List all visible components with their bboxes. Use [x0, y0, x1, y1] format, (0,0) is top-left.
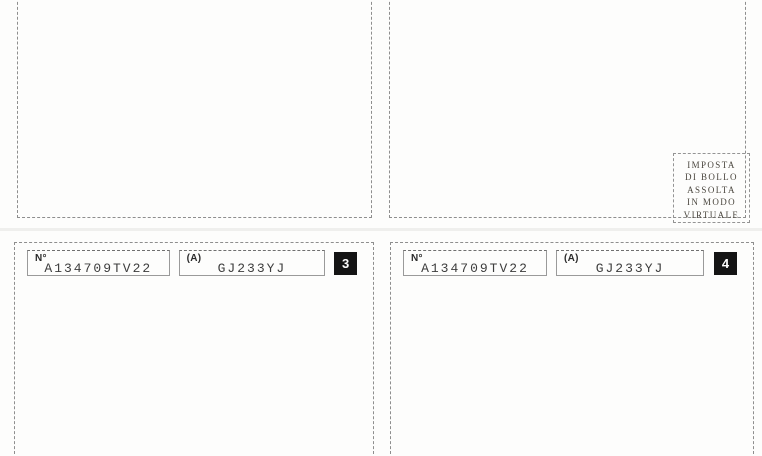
coupon-header: N° A134709TV22 (A) GJ233YJ 4	[391, 243, 753, 276]
virtual-stamp-duty-box: IMPOSTA DI BOLLO ASSOLTA IN MODO VIRTUAL…	[673, 153, 750, 223]
document-number-value: A134709TV22	[28, 261, 169, 276]
stamp-line: IN MODO	[674, 196, 749, 208]
stamp-line: VIRTUALE	[674, 209, 749, 221]
form-cell-top-left	[17, 0, 372, 218]
document-number-field: N° A134709TV22	[27, 250, 170, 276]
document-number-field: N° A134709TV22	[403, 250, 547, 276]
copy-number-badge: 3	[334, 252, 357, 275]
document-number-value: A134709TV22	[404, 261, 546, 276]
scanned-form-page: IMPOSTA DI BOLLO ASSOLTA IN MODO VIRTUAL…	[0, 0, 762, 456]
coupon-header: N° A134709TV22 (A) GJ233YJ 3	[15, 243, 373, 276]
scan-artifact-band	[0, 228, 762, 231]
stamp-line: IMPOSTA	[674, 159, 749, 171]
plate-code-value: GJ233YJ	[180, 261, 325, 276]
stamp-line: ASSOLTA	[674, 184, 749, 196]
stamp-line: DI BOLLO	[674, 171, 749, 183]
copy-number-badge: 4	[714, 252, 737, 275]
form-cell-coupon-4: N° A134709TV22 (A) GJ233YJ 4	[390, 242, 754, 456]
plate-code-field: (A) GJ233YJ	[556, 250, 704, 276]
form-cell-coupon-3: N° A134709TV22 (A) GJ233YJ 3	[14, 242, 374, 456]
plate-code-field: (A) GJ233YJ	[179, 250, 326, 276]
plate-code-value: GJ233YJ	[557, 261, 703, 276]
